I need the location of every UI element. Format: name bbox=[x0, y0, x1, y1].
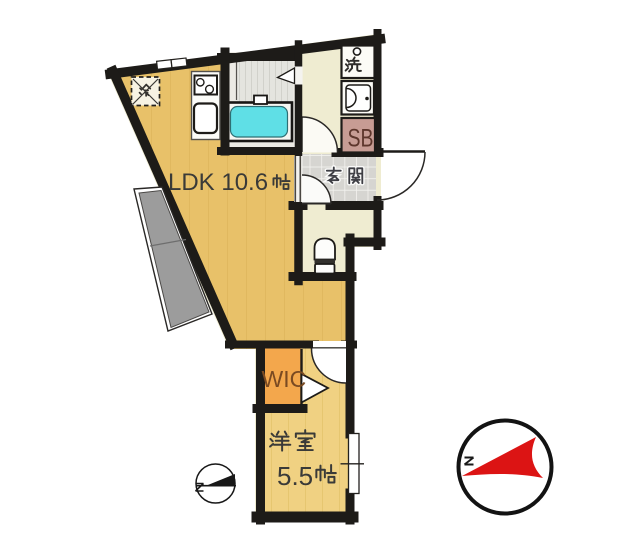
svg-text:LDK 10.6: LDK 10.6 bbox=[168, 169, 268, 196]
svg-text:WIC: WIC bbox=[262, 366, 307, 392]
svg-text:SB: SB bbox=[348, 124, 374, 152]
svg-text:5.5: 5.5 bbox=[277, 461, 313, 491]
